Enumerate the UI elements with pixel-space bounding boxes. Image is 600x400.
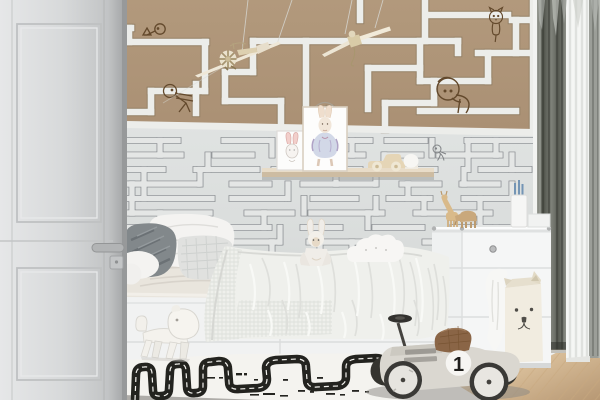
svg-text:1: 1 [453, 354, 464, 376]
